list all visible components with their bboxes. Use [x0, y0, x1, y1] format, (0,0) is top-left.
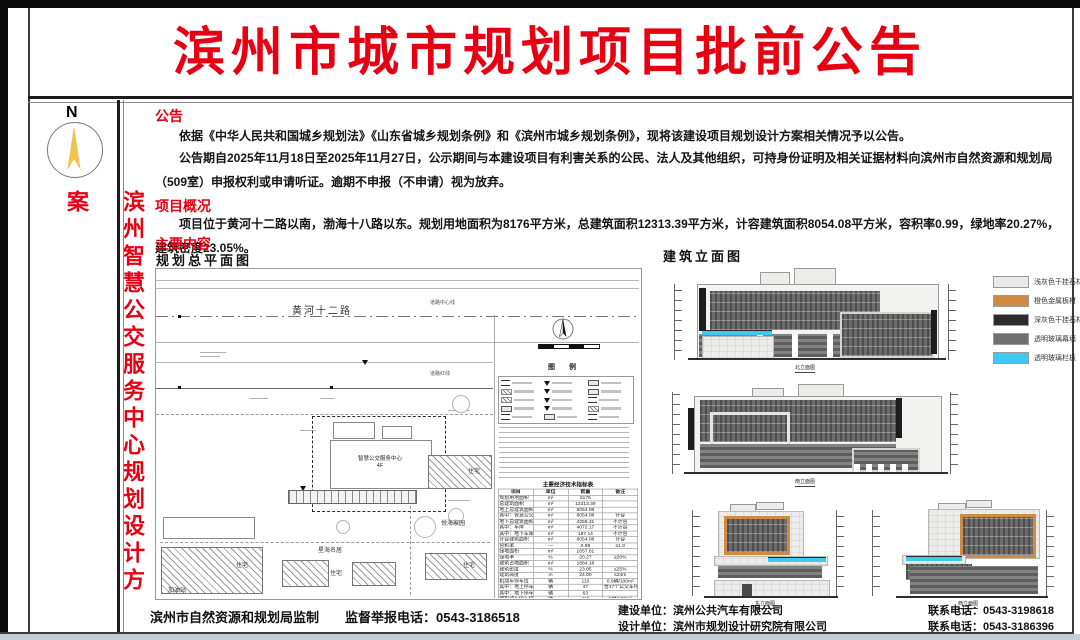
entrance-door — [742, 584, 752, 596]
sidebar-divider-thick — [117, 100, 120, 632]
dimension-column — [1046, 510, 1054, 596]
elevation-south-label: 南立面图 — [795, 478, 815, 487]
legend-item — [544, 414, 587, 421]
material-swatch — [993, 276, 1029, 288]
legend-title: 图 例 — [548, 362, 582, 372]
announcement-para2: 公告期自2025年11月18日至2025年11月27日，公示期间与本建设项目有利… — [155, 146, 1067, 194]
glass-railing-strip — [906, 556, 962, 561]
facade-dark-slab — [688, 408, 694, 450]
announcement-heading: 公告 — [155, 106, 183, 126]
residential-label: 住宅 — [330, 568, 342, 577]
legend-item — [544, 405, 587, 412]
road-name-label: 黄河十二路 — [292, 302, 352, 317]
legend-item — [501, 380, 544, 387]
parking-strip — [288, 490, 417, 504]
material-swatch — [993, 333, 1029, 345]
community-label-bottom: 星海名居 — [318, 545, 342, 554]
annotation-mark — [200, 356, 220, 357]
sidebar-project-name: 滨州智慧公交服务中心规划设计方案 — [48, 190, 160, 604]
title-rule-thin — [28, 102, 1072, 103]
residential-label: 住宅 — [463, 560, 475, 569]
legend-item — [588, 405, 631, 412]
facade-stone-block — [702, 336, 774, 359]
top-border-bar — [0, 0, 1080, 8]
road-centerline — [156, 316, 639, 317]
material-legend-item: 浅灰色干挂石材 — [993, 276, 1077, 288]
facade-projecting-box — [852, 448, 920, 472]
page-title: 滨州市城市规划项目批前公告 — [28, 14, 1072, 92]
dimension-column — [692, 510, 700, 596]
entrance-arrow-icon — [362, 360, 368, 365]
material-legend-item: 透明玻璃幕墙 — [993, 333, 1077, 345]
overview-para: 项目位于黄河十二路以南，渤海十八路以东。规划用地面积为8176平方米，总建筑面积… — [155, 212, 1067, 260]
redline-label: 道路红线 — [430, 370, 450, 377]
community-label-right: 悦海家园 — [441, 518, 465, 527]
road-line — [156, 342, 639, 343]
legend-item — [544, 388, 587, 395]
residential-block — [282, 560, 329, 587]
survey-dot — [178, 315, 181, 318]
notes-lines — [499, 426, 629, 478]
footer-designer: 设计单位：滨州市规划设计研究院有限公司 — [618, 618, 827, 634]
indicator-table-area: 主要经济技术指标表 项目单位数量备注 规划用地面积m²8176总建筑面积m²12… — [498, 481, 640, 598]
facade-column — [878, 464, 884, 472]
facade-orange-glass-box — [724, 516, 790, 555]
facade-glass-band — [910, 566, 1038, 594]
road-edge-line — [156, 388, 493, 389]
survey-dot — [178, 386, 181, 389]
main-building-floors: 4F — [332, 463, 428, 470]
legend-box — [498, 376, 634, 424]
legend-item — [544, 380, 587, 387]
ground-line — [704, 596, 838, 598]
material-swatch — [993, 295, 1029, 307]
dimension-column — [950, 392, 958, 474]
footer-builder: 建设单位：滨州公共汽车有限公司 — [618, 602, 783, 618]
annex-building — [333, 422, 375, 439]
facade-dark-slab — [931, 310, 937, 354]
tree-icon — [336, 520, 350, 534]
title-rule-thick — [28, 96, 1072, 99]
bottom-strip — [0, 634, 1080, 640]
facade-column — [792, 334, 798, 357]
ground-line — [688, 358, 946, 360]
ground-line — [896, 596, 1048, 598]
boundary-dash-line — [160, 542, 490, 543]
north-rose-icon — [552, 318, 574, 340]
tree-icon — [414, 516, 436, 538]
facade-orange-glass-box — [960, 514, 1036, 558]
facade-column — [866, 464, 872, 472]
setback-dash-line — [156, 414, 493, 415]
legend-item — [501, 388, 544, 395]
dimension-column — [674, 284, 682, 360]
legend-item — [501, 397, 544, 404]
roof-parapet — [756, 502, 784, 510]
facade-projecting-box — [840, 312, 934, 358]
dimension-column — [872, 510, 880, 596]
survey-dot — [330, 386, 333, 389]
legend-item — [588, 380, 631, 387]
residential-block — [428, 455, 492, 489]
facade-glass-band — [718, 566, 822, 578]
roof-parapet — [794, 268, 836, 285]
left-border-bar — [0, 0, 8, 634]
legend-item — [588, 414, 631, 421]
footer-designer-phone: 联系电话：0543-3186396 — [928, 618, 1054, 634]
indicator-table: 项目单位数量备注 规划用地面积m²8176总建筑面积m²12313.39地上总建… — [498, 489, 638, 598]
glass-railing-strip — [768, 557, 826, 562]
residential-block — [352, 562, 396, 586]
annotation-mark — [250, 398, 268, 399]
legend-item — [501, 414, 544, 421]
scale-bar — [538, 344, 600, 349]
material-legend-item: 橙色金属板材 — [993, 295, 1077, 307]
material-label: 透明玻璃幕墙 — [1034, 334, 1076, 344]
facade-dark-slab — [896, 398, 902, 438]
legend-item — [588, 397, 631, 404]
facade-column — [827, 334, 833, 357]
annotation-mark — [320, 398, 334, 399]
annotation-mark — [448, 500, 470, 501]
material-swatch — [993, 352, 1029, 364]
dimension-column — [672, 392, 680, 474]
materials-legend: 浅灰色干挂石材橙色金属板材深灰色干挂石材透明玻璃幕墙透明玻璃栏板 — [993, 276, 1077, 371]
compass-north-letter: N — [66, 104, 78, 122]
material-swatch — [993, 314, 1029, 326]
indicator-table-title: 主要经济技术指标表 — [498, 481, 638, 489]
facade-column — [854, 464, 860, 472]
material-label: 透明玻璃栏板 — [1034, 353, 1076, 363]
sidebar-divider-thin — [123, 100, 124, 632]
material-legend-item: 深灰色干挂石材 — [993, 314, 1077, 326]
dimension-column — [948, 284, 956, 360]
ground-line — [684, 472, 948, 474]
elevations-heading: 建筑立面图 — [663, 246, 743, 265]
material-label: 浅灰色干挂石材 — [1034, 277, 1080, 287]
facade-column — [902, 464, 908, 472]
road-line — [156, 280, 639, 281]
legend-item — [588, 388, 631, 395]
residential-label: 住宅 — [236, 560, 248, 569]
footer-supervisor: 滨州市自然资源和规划局监制 — [150, 607, 319, 626]
tree-icon — [452, 395, 470, 413]
material-label: 深灰色干挂石材 — [1034, 315, 1080, 325]
announcement-para1: 依据《中华人民共和国城乡规划法》《山东省城乡规划条例》和《滨州市城乡规划条例》，… — [155, 124, 1067, 148]
roof-parapet — [966, 500, 992, 508]
dimension-column — [836, 510, 844, 596]
annex-building — [382, 426, 412, 439]
gas-station-label: 加油站 — [168, 585, 186, 594]
material-label: 橙色金属板材 — [1034, 296, 1076, 306]
centerline-label: 道路中心线 — [430, 299, 455, 306]
indicator-row: 非机动车停车位辆4185辆/100m² — [498, 596, 637, 598]
footer-hotline: 监督举报电话：0543-3186518 — [345, 607, 520, 626]
indicator-table-body: 规划用地面积m²8176总建筑面积m²12313.39地上总建筑面积m²8054… — [498, 495, 637, 598]
facade-column — [890, 464, 896, 472]
road-line — [156, 362, 493, 363]
residential-block — [425, 553, 487, 580]
road-line — [156, 288, 639, 289]
site-plan-heading: 规划总平面图 — [156, 250, 252, 269]
facade-dark-slab — [699, 288, 706, 331]
announcement-poster: 滨州市城市规划项目批前公告 N 滨州智慧公交服务中心规划设计方案 公告 依据《中… — [0, 0, 1080, 640]
legend-item — [501, 405, 544, 412]
glass-railing-strip — [702, 330, 772, 335]
neighbour-building — [163, 517, 255, 539]
annotation-mark — [200, 352, 226, 353]
material-legend-item: 透明玻璃栏板 — [993, 352, 1077, 364]
legend-item — [544, 397, 587, 404]
footer-builder-phone: 联系电话：0543-3198618 — [928, 602, 1054, 618]
legend-column-divider — [494, 315, 495, 598]
residential-label: 住宅 — [468, 466, 480, 475]
main-building-label: 智慧公交服务中心 — [332, 456, 428, 463]
elevation-north-label: 北立面图 — [795, 364, 815, 373]
